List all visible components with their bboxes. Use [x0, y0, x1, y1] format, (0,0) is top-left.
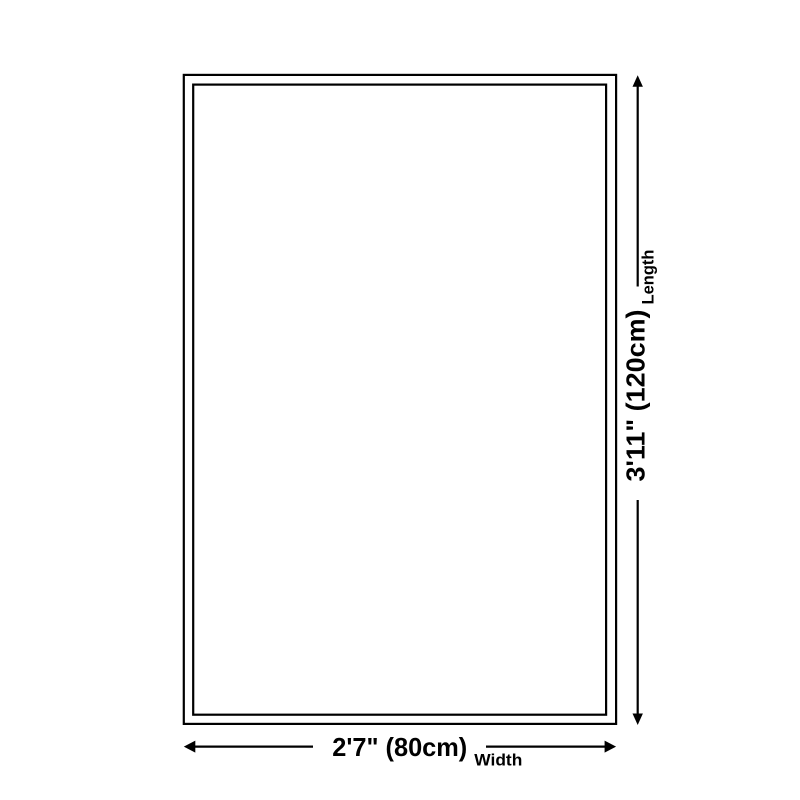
- svg-text:3'11" (120cm): 3'11" (120cm): [620, 310, 650, 482]
- svg-text:Length: Length: [640, 250, 658, 305]
- svg-text:Width: Width: [474, 751, 522, 769]
- svg-text:2'7" (80cm): 2'7" (80cm): [332, 732, 467, 762]
